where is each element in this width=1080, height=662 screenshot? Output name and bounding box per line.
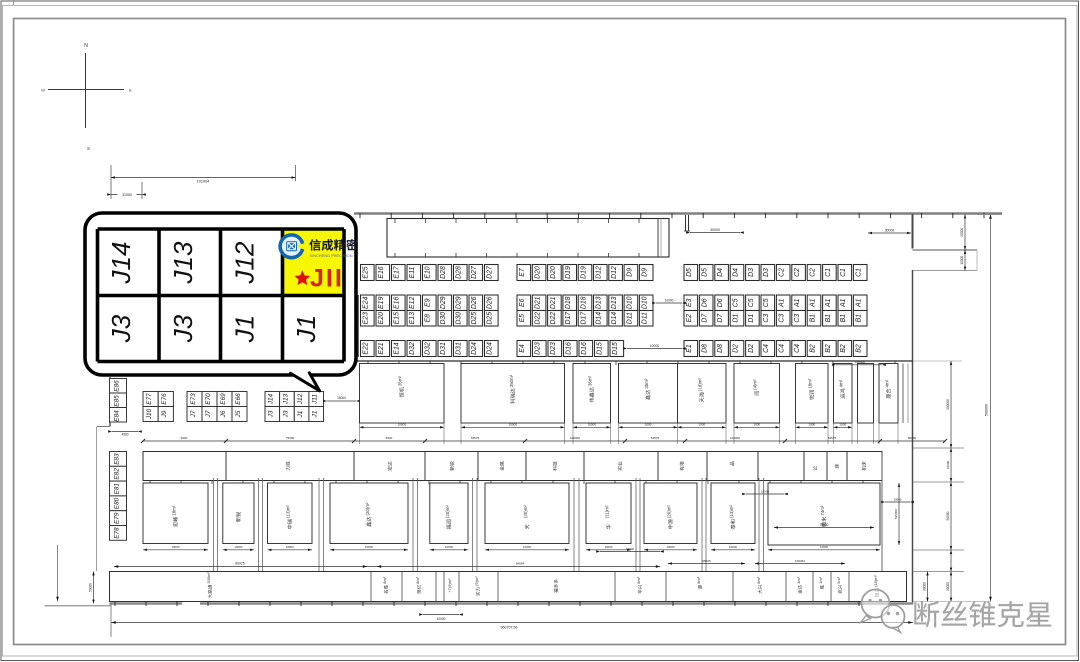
svg-text:D6: D6 — [702, 298, 709, 307]
svg-text:D24: D24 — [471, 342, 478, 355]
svg-text:D9: D9 — [642, 268, 649, 277]
svg-text:E19: E19 — [378, 297, 385, 309]
svg-text:J14: J14 — [106, 242, 136, 285]
svg-text:4500: 4500 — [121, 433, 128, 437]
svg-text:E20: E20 — [378, 312, 385, 324]
svg-text:D5: D5 — [686, 268, 693, 277]
svg-text:D32: D32 — [409, 342, 416, 355]
svg-text:J13: J13 — [282, 393, 289, 405]
svg-text:D21: D21 — [550, 296, 557, 309]
svg-text:E80: E80 — [114, 497, 121, 509]
svg-text:E78: E78 — [114, 527, 121, 539]
svg-text:D3: D3 — [748, 268, 755, 277]
svg-text:D17: D17 — [565, 311, 572, 325]
svg-text:8m²: 8m² — [756, 576, 761, 584]
svg-text:75000: 75000 — [820, 523, 829, 527]
svg-text:(20)m²: (20)m² — [365, 502, 370, 515]
svg-text:10000: 10000 — [365, 545, 373, 549]
svg-text:A1: A1 — [840, 298, 847, 308]
svg-text:1000: 1000 — [645, 422, 652, 426]
svg-text:4m²: 4m² — [839, 379, 844, 387]
svg-text:101004: 101004 — [197, 180, 210, 184]
svg-text:D12: D12 — [596, 266, 603, 279]
svg-text:(13)m²: (13)m² — [286, 505, 291, 518]
svg-text:J6: J6 — [220, 410, 227, 418]
svg-text:E21: E21 — [378, 342, 385, 354]
svg-text:300m²: 300m² — [206, 572, 211, 584]
svg-text:10000: 10000 — [855, 360, 864, 364]
svg-text:J7: J7 — [190, 410, 197, 418]
svg-text:J12: J12 — [230, 241, 260, 284]
svg-text:D16: D16 — [581, 342, 588, 355]
svg-text:XINCHENG PRECISION: XINCHENG PRECISION — [310, 253, 353, 258]
svg-text:D26: D26 — [471, 296, 478, 309]
svg-text:E4: E4 — [519, 344, 526, 353]
svg-text:J3: J3 — [268, 410, 275, 418]
svg-text:D18: D18 — [565, 296, 572, 309]
svg-text:E2: E2 — [686, 314, 693, 323]
svg-text:A1: A1 — [794, 298, 801, 308]
svg-text:D23: D23 — [550, 342, 557, 355]
svg-text:50000: 50000 — [946, 511, 950, 520]
svg-text:30000: 30000 — [710, 228, 720, 232]
svg-text:C3: C3 — [763, 314, 770, 323]
svg-text:J1: J1 — [291, 315, 321, 343]
svg-text:J11: J11 — [312, 394, 319, 405]
svg-text:350m²: 350m² — [509, 374, 514, 387]
svg-text:A1: A1 — [809, 298, 816, 308]
svg-text:100364: 100364 — [795, 559, 805, 563]
svg-text:E14: E14 — [394, 342, 401, 354]
svg-text:D13: D13 — [596, 296, 603, 309]
svg-text:D11: D11 — [626, 312, 633, 324]
svg-text:E23: E23 — [363, 312, 370, 324]
svg-text:(11)m²: (11)m² — [605, 505, 610, 518]
svg-text:80000: 80000 — [908, 436, 917, 440]
svg-text:E81: E81 — [114, 483, 121, 495]
svg-text:1000: 1000 — [753, 422, 760, 426]
svg-text:8m²: 8m² — [696, 576, 701, 584]
svg-text:35m²: 35m² — [398, 375, 403, 386]
svg-text:(9)m²: (9)m² — [474, 576, 479, 586]
svg-text:D7: D7 — [702, 313, 709, 323]
svg-text:C1: C1 — [856, 268, 863, 277]
svg-text:C2: C2 — [779, 268, 786, 277]
svg-text:18m²: 18m² — [808, 378, 813, 389]
svg-text:8m²: 8m² — [636, 576, 641, 584]
svg-text:D27: D27 — [471, 265, 478, 279]
svg-text:10000: 10000 — [960, 256, 964, 265]
svg-text:C1: C1 — [825, 268, 832, 277]
svg-text:10000: 10000 — [761, 489, 770, 493]
svg-text:D29: D29 — [456, 296, 463, 309]
svg-text:E16: E16 — [378, 266, 385, 278]
svg-text:B1: B1 — [840, 314, 847, 323]
svg-text:D28: D28 — [456, 266, 463, 279]
svg-text:D19: D19 — [565, 266, 572, 279]
svg-text:D26: D26 — [487, 296, 494, 309]
svg-text:E11: E11 — [409, 266, 416, 278]
svg-text:C5: C5 — [763, 298, 770, 307]
svg-text:E: E — [129, 88, 132, 93]
svg-text:E79: E79 — [114, 512, 121, 524]
svg-text:D11: D11 — [642, 312, 649, 324]
svg-text:B2: B2 — [825, 344, 832, 353]
svg-text:10000: 10000 — [398, 422, 407, 426]
svg-text:960707.56: 960707.56 — [501, 626, 518, 630]
svg-text:10000: 10000 — [604, 545, 612, 549]
svg-text:4m²: 4m² — [796, 576, 801, 584]
svg-text:10000: 10000 — [171, 545, 179, 549]
svg-text:D31: D31 — [440, 342, 447, 355]
svg-text:10000: 10000 — [729, 545, 737, 549]
svg-text:D27: D27 — [487, 265, 494, 279]
svg-text:D29: D29 — [440, 296, 447, 309]
svg-text:E85: E85 — [114, 395, 121, 407]
svg-text:E66: E66 — [235, 393, 242, 405]
svg-text:35m²: 35m² — [644, 378, 649, 389]
svg-text:D28: D28 — [440, 266, 447, 279]
svg-text:74m²: 74m² — [820, 505, 825, 516]
svg-text:54575: 54575 — [828, 436, 837, 440]
svg-text:C5: C5 — [732, 298, 739, 307]
svg-text:E15: E15 — [394, 312, 401, 324]
svg-text:D8: D8 — [717, 344, 724, 353]
svg-text:D15: D15 — [612, 342, 619, 355]
svg-text:(20)m²: (20)m² — [523, 505, 528, 518]
svg-text:20000: 20000 — [960, 228, 964, 237]
svg-text:D20: D20 — [550, 266, 557, 279]
svg-text:E12: E12 — [409, 297, 416, 309]
svg-text:D4: D4 — [732, 268, 739, 277]
svg-text:E83: E83 — [114, 453, 121, 465]
svg-text:75000: 75000 — [286, 436, 295, 440]
svg-text:J5: J5 — [235, 410, 242, 418]
svg-text:D24: D24 — [487, 342, 494, 355]
svg-text:D7: D7 — [717, 313, 724, 323]
svg-text:J9: J9 — [161, 410, 168, 418]
svg-text:D17: D17 — [580, 311, 587, 325]
svg-text:D10: D10 — [642, 296, 649, 309]
svg-text:D3: D3 — [763, 268, 770, 277]
svg-text:E84: E84 — [114, 410, 121, 422]
svg-text:E17: E17 — [394, 265, 401, 278]
svg-text:C4: C4 — [794, 344, 801, 353]
svg-text:E77: E77 — [146, 393, 153, 405]
svg-text:D4: D4 — [717, 268, 724, 277]
svg-text:E82: E82 — [114, 468, 121, 480]
svg-text:10000: 10000 — [437, 617, 446, 621]
svg-text:E16: E16 — [394, 297, 401, 309]
svg-text:J12: J12 — [297, 393, 304, 405]
svg-text:10000: 10000 — [666, 545, 674, 549]
svg-text:E25: E25 — [363, 266, 370, 278]
svg-text:D9: D9 — [626, 268, 633, 277]
svg-text:N: N — [84, 43, 88, 49]
svg-text:E7: E7 — [519, 267, 526, 277]
svg-text:(18)m²: (18)m² — [873, 575, 878, 587]
svg-text:JII: JII — [310, 265, 344, 293]
svg-text:D8: D8 — [702, 344, 709, 353]
svg-text:J1: J1 — [312, 410, 319, 418]
svg-text:D25: D25 — [471, 312, 478, 325]
svg-text:B2: B2 — [809, 344, 816, 353]
svg-text:18m²: 18m² — [172, 505, 177, 516]
svg-text:C1: C1 — [840, 268, 847, 277]
svg-text:8m²: 8m² — [415, 576, 420, 584]
svg-text:D22: D22 — [535, 312, 542, 325]
svg-text:D32: D32 — [425, 342, 432, 355]
svg-text:D18: D18 — [580, 296, 587, 309]
svg-text:D2: D2 — [732, 344, 739, 353]
svg-text:(13)m²: (13)m² — [729, 505, 734, 518]
svg-text:1000: 1000 — [808, 422, 815, 426]
svg-text:8m²: 8m² — [382, 576, 387, 584]
svg-text:J3: J3 — [168, 314, 198, 343]
svg-text:E1: E1 — [686, 344, 693, 353]
svg-text:J3: J3 — [106, 314, 136, 343]
svg-text:80025: 80025 — [235, 561, 244, 565]
svg-text:D2: D2 — [748, 344, 755, 353]
svg-text:D19: D19 — [580, 266, 587, 279]
svg-text:D20: D20 — [535, 266, 542, 279]
svg-text:C3: C3 — [779, 314, 786, 323]
svg-text:30000: 30000 — [885, 228, 895, 232]
svg-text:D16: D16 — [566, 342, 573, 355]
svg-text:D5: D5 — [702, 268, 709, 277]
svg-text:E5: E5 — [519, 314, 526, 323]
svg-text:B1: B1 — [825, 314, 832, 323]
svg-text:D1: D1 — [732, 314, 739, 323]
svg-text:10000: 10000 — [445, 545, 453, 549]
svg-text:566666: 566666 — [985, 404, 989, 416]
svg-text:10000: 10000 — [946, 460, 950, 469]
svg-text:E76: E76 — [161, 393, 168, 405]
svg-text:E9: E9 — [425, 298, 432, 307]
svg-text:10000: 10000 — [523, 545, 531, 549]
svg-text:D31: D31 — [456, 342, 463, 355]
svg-text:10000: 10000 — [650, 344, 660, 348]
svg-text:B2: B2 — [856, 344, 863, 353]
svg-text:E10: E10 — [425, 266, 432, 278]
svg-text:525000: 525000 — [894, 509, 898, 519]
svg-text:54575: 54575 — [471, 436, 480, 440]
svg-text:10000: 10000 — [509, 422, 518, 426]
svg-text:5000: 5000 — [181, 436, 188, 440]
svg-text:B1: B1 — [809, 314, 816, 323]
svg-text:(20)m²: (20)m² — [445, 505, 450, 518]
svg-text:16000: 16000 — [337, 396, 346, 400]
svg-text:35m²: 35m² — [588, 375, 593, 386]
svg-text:J10: J10 — [146, 408, 153, 420]
svg-text:31000: 31000 — [122, 193, 132, 197]
svg-text:+7(9)m²: +7(9)m² — [447, 578, 452, 593]
svg-text:10000: 10000 — [893, 497, 901, 501]
svg-text:30000: 30000 — [946, 582, 950, 591]
svg-text:D13: D13 — [611, 296, 618, 309]
svg-text:E70: E70 — [205, 393, 212, 405]
svg-text:64064: 64064 — [516, 561, 525, 565]
svg-text:10000: 10000 — [286, 545, 294, 549]
svg-text:A1: A1 — [825, 298, 832, 308]
svg-text:J14: J14 — [268, 393, 275, 405]
svg-text:D6: D6 — [717, 298, 724, 307]
svg-text:B1: B1 — [856, 314, 863, 323]
svg-text:5m²: 5m² — [836, 576, 841, 584]
svg-text:1000: 1000 — [839, 422, 846, 426]
svg-text:100000: 100000 — [570, 436, 580, 440]
svg-text:(4)m²: (4)m² — [753, 379, 758, 390]
svg-text:W: W — [41, 88, 45, 93]
svg-text:J1: J1 — [297, 410, 304, 418]
svg-text:C3: C3 — [794, 314, 801, 323]
svg-text:50000: 50000 — [89, 583, 93, 592]
svg-text:54575: 54575 — [651, 436, 660, 440]
svg-text:D30: D30 — [440, 312, 447, 325]
svg-text:D25: D25 — [487, 312, 494, 325]
svg-text:10000: 10000 — [665, 298, 674, 302]
svg-text:1m²: 1m² — [818, 576, 823, 584]
svg-text:E86: E86 — [114, 380, 121, 392]
svg-text:A1: A1 — [856, 298, 863, 308]
svg-text:E8: E8 — [425, 314, 432, 323]
svg-text:J1: J1 — [230, 315, 260, 343]
svg-text:100000: 100000 — [730, 436, 740, 440]
svg-text:E22: E22 — [363, 342, 370, 354]
svg-text:J3: J3 — [282, 410, 289, 418]
svg-text:D22: D22 — [550, 312, 557, 325]
svg-text:D14: D14 — [596, 312, 603, 325]
svg-text:10000: 10000 — [626, 547, 634, 551]
svg-text:10000: 10000 — [234, 545, 242, 549]
svg-text:D10: D10 — [626, 296, 633, 309]
svg-text:1000: 1000 — [698, 422, 705, 426]
svg-text:D23: D23 — [535, 342, 542, 355]
svg-text:J13: J13 — [168, 241, 198, 284]
svg-text:A1: A1 — [779, 298, 786, 308]
svg-text:10000: 10000 — [588, 422, 597, 426]
svg-text:B2: B2 — [840, 344, 847, 353]
svg-text:D15: D15 — [597, 342, 604, 355]
svg-text:5000: 5000 — [386, 436, 393, 440]
svg-text:E69: E69 — [220, 393, 227, 405]
svg-text:E73: E73 — [190, 393, 197, 405]
svg-text:4m²: 4m² — [885, 379, 890, 387]
svg-text:C2: C2 — [794, 268, 801, 277]
svg-text:E3: E3 — [686, 298, 693, 307]
svg-text:30000: 30000 — [923, 582, 927, 591]
svg-text:D12: D12 — [611, 266, 618, 279]
svg-text:E24: E24 — [363, 297, 370, 309]
svg-text:D14: D14 — [611, 312, 618, 325]
svg-text:C4: C4 — [763, 344, 770, 353]
svg-text:D30: D30 — [456, 312, 463, 325]
svg-text:C5: C5 — [748, 298, 755, 307]
svg-text:(20)m²: (20)m² — [667, 505, 672, 518]
svg-text:D21: D21 — [535, 296, 542, 309]
svg-text:C2: C2 — [809, 268, 816, 277]
svg-text:C4: C4 — [779, 344, 786, 353]
svg-text:D1: D1 — [748, 314, 755, 323]
svg-text:S: S — [87, 146, 90, 151]
svg-text:100000: 100000 — [946, 399, 950, 410]
svg-text:E6: E6 — [519, 298, 526, 307]
svg-text:(18)m²: (18)m² — [698, 378, 703, 391]
svg-text:10000: 10000 — [820, 545, 828, 549]
svg-text:E13: E13 — [409, 312, 416, 324]
svg-text:65026: 65026 — [702, 559, 711, 563]
svg-text:J7: J7 — [205, 410, 212, 418]
